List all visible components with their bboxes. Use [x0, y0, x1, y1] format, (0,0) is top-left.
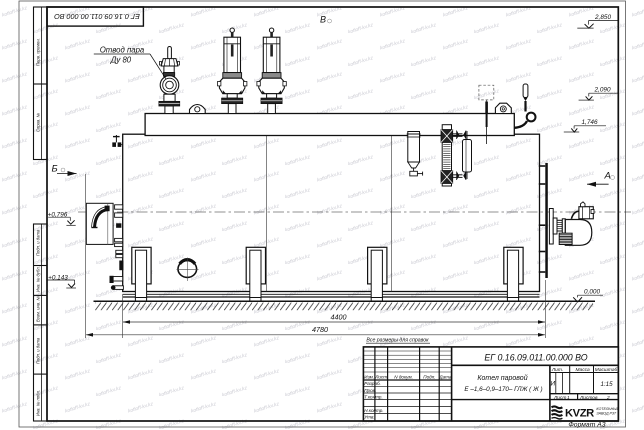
svg-text:2,850: 2,850	[594, 14, 611, 21]
svg-text:1: 1	[567, 395, 570, 401]
svg-text:Масштаб: Масштаб	[595, 367, 618, 373]
svg-text:Инв. № дубл.: Инв. № дубл.	[36, 266, 41, 292]
svg-text:Утв.: Утв.	[364, 415, 374, 420]
svg-text:А: А	[604, 171, 611, 182]
svg-text:Е –1,6–0,9–170– ГЛЖ ( Ж ): Е –1,6–0,9–170– ГЛЖ ( Ж )	[464, 386, 542, 393]
svg-text:KVZR: KVZR	[565, 407, 594, 419]
svg-text:Все размеры для справок: Все размеры для справок	[366, 338, 429, 344]
svg-text:4780: 4780	[312, 325, 328, 334]
svg-text:В: В	[320, 15, 326, 25]
svg-text:0,000: 0,000	[584, 288, 600, 295]
svg-text:Н.контр.: Н.контр.	[364, 408, 383, 413]
svg-text:4400: 4400	[331, 313, 347, 322]
svg-text:ЗАВОД РЗТ: ЗАВОД РЗТ	[596, 412, 616, 416]
svg-text:Масса: Масса	[576, 367, 591, 373]
svg-text:Перв. примен.: Перв. примен.	[36, 38, 41, 66]
svg-text:ЕГ 0.16.09.011.00.000 ВО: ЕГ 0.16.09.011.00.000 ВО	[54, 12, 140, 21]
svg-text:Подп.: Подп.	[423, 374, 435, 379]
svg-text:Дата: Дата	[438, 374, 452, 379]
svg-text:1,746: 1,746	[582, 119, 598, 126]
svg-text:Формат А3: Формат А3	[568, 422, 605, 429]
svg-text:КОТЕЛЬНЫЙ: КОТЕЛЬНЫЙ	[596, 407, 619, 411]
svg-text:Разраб.: Разраб.	[364, 381, 381, 386]
svg-text:+0,796: +0,796	[48, 211, 68, 218]
svg-text:И: И	[550, 381, 555, 388]
svg-text:Взам. инв. №: Взам. инв. №	[36, 296, 41, 322]
svg-text:2: 2	[606, 395, 610, 401]
svg-text:2,090: 2,090	[594, 87, 611, 94]
svg-text:Ду 80: Ду 80	[110, 56, 132, 65]
svg-text:Листов: Листов	[579, 395, 598, 401]
svg-text:Б: Б	[52, 164, 58, 175]
svg-text:ЕГ 0.16.09.011.00.000 ВО: ЕГ 0.16.09.011.00.000 ВО	[484, 352, 587, 362]
svg-text:Лист: Лист	[553, 395, 566, 401]
svg-text:Лит.: Лит.	[551, 367, 563, 373]
svg-text:Инв. № подл.: Инв. № подл.	[36, 390, 41, 416]
svg-text:Лист: Лист	[374, 374, 387, 379]
svg-text:Справ. №: Справ. №	[36, 113, 41, 132]
svg-text:N докум.: N докум.	[394, 374, 413, 379]
svg-text:Т.контр.: Т.контр.	[364, 395, 383, 400]
svg-text:+0,143: +0,143	[48, 275, 68, 282]
svg-text:Изм.: Изм.	[364, 374, 374, 379]
svg-text:Подп. и дата: Подп. и дата	[36, 229, 41, 256]
svg-text:Отвод пара: Отвод пара	[100, 46, 145, 55]
svg-text:Котел паровой: Котел паровой	[477, 374, 527, 382]
svg-text:1:15: 1:15	[600, 381, 613, 388]
svg-text:Подп. и дата: Подп. и дата	[36, 337, 41, 364]
svg-text:Пров.: Пров.	[364, 388, 376, 393]
